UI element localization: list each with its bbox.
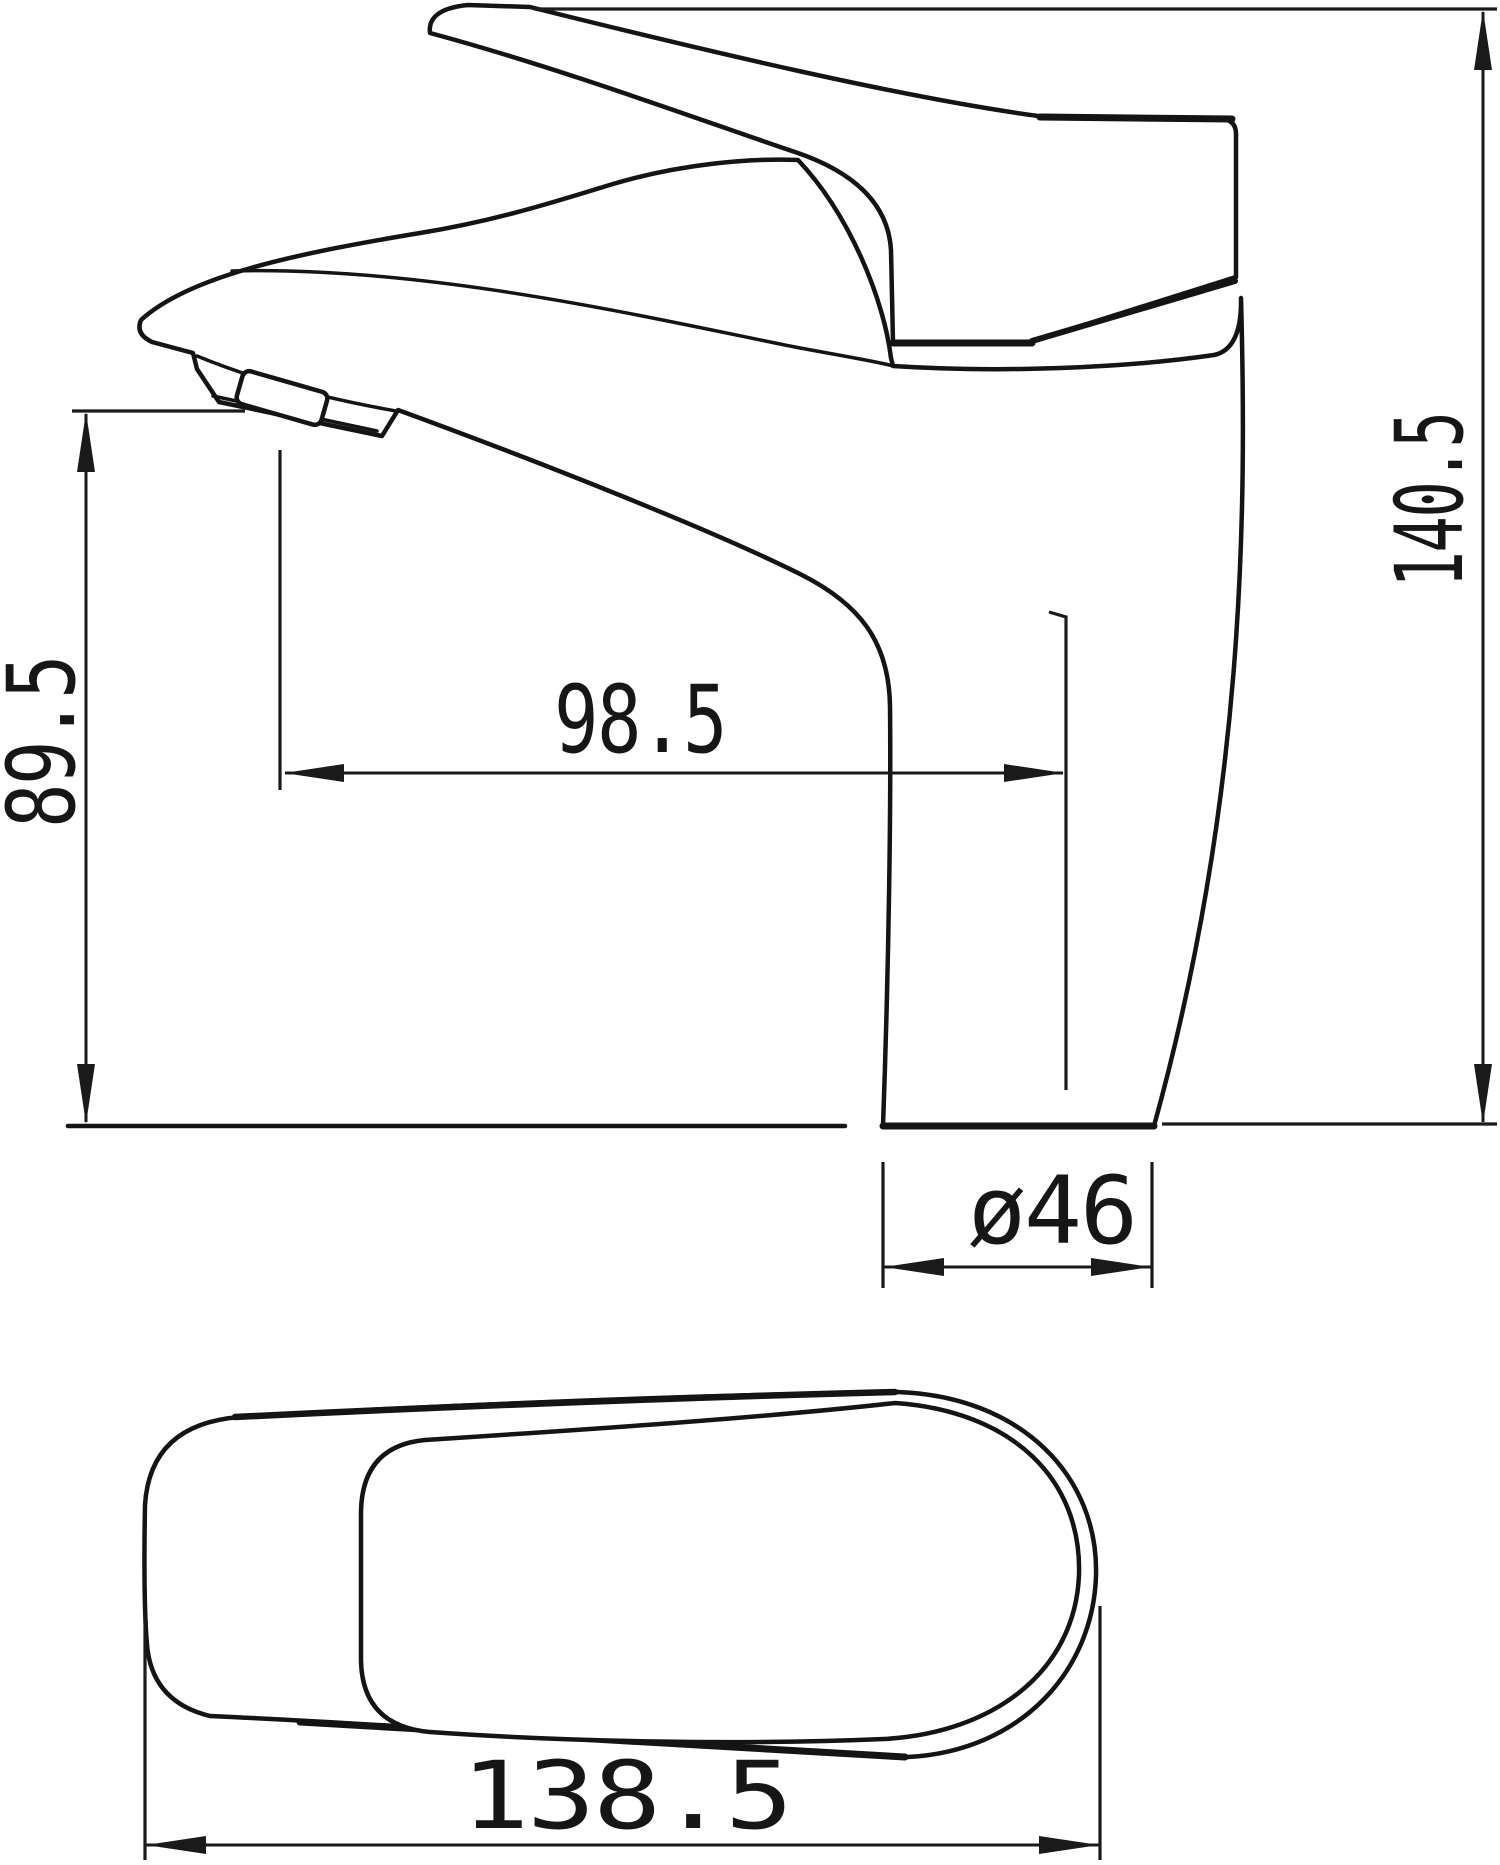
arrowhead-up-icon <box>1474 10 1492 70</box>
dimension-spout-height: 89.5 <box>0 411 245 1124</box>
dim-label-overall-length: 138.5 <box>461 1742 791 1851</box>
drawing-sheet: 140.5 89.5 98.5 ø46 138.5 <box>0 0 1500 1865</box>
faucet-top-view <box>144 1392 1096 1757</box>
dim-label-spout-reach: 98.5 <box>554 666 726 775</box>
arrowhead-up-icon <box>77 412 95 472</box>
arrowhead-left-icon <box>146 1836 206 1854</box>
arrowhead-down-icon <box>1474 1064 1492 1124</box>
dim-label-base-diameter: ø46 <box>968 1157 1136 1266</box>
plan-lever-pad-outline <box>361 1403 1079 1742</box>
arrowhead-down-icon <box>77 1064 95 1124</box>
arrowhead-left-icon <box>884 1258 944 1276</box>
dim-label-overall-height: 140.5 <box>1376 413 1485 588</box>
dimension-base-diameter: ø46 <box>883 1157 1152 1288</box>
dim-label-spout-height: 89.5 <box>0 656 97 828</box>
faucet-dimension-drawing: 140.5 89.5 98.5 ø46 138.5 <box>0 0 1500 1865</box>
handle-rear-top-edge <box>1040 117 1232 119</box>
arrowhead-right-icon <box>1039 1836 1099 1854</box>
arrowhead-left-icon <box>284 764 344 782</box>
